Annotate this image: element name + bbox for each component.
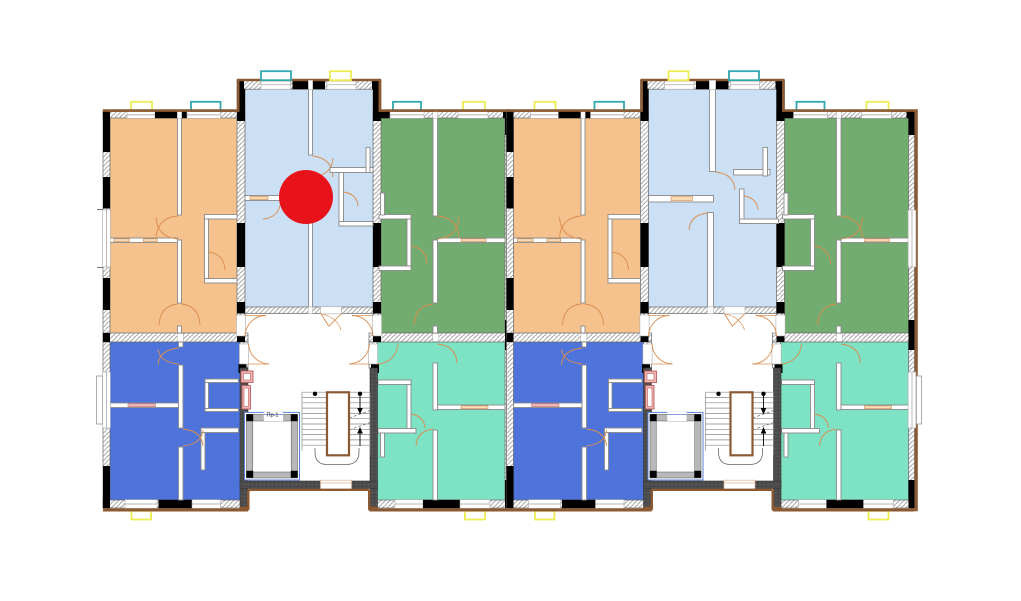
svg-text:Пр-1: Пр-1 bbox=[266, 413, 278, 419]
